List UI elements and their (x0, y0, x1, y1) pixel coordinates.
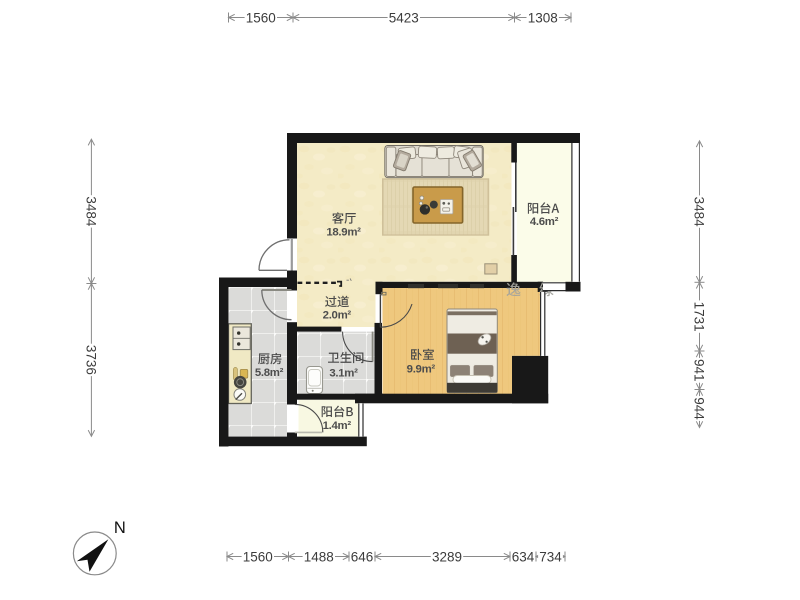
svg-text:5.8m²: 5.8m² (255, 367, 284, 379)
svg-text:1731: 1731 (692, 302, 707, 332)
svg-text:1488: 1488 (304, 549, 334, 564)
svg-text:1560: 1560 (246, 10, 276, 25)
svg-text:5423: 5423 (389, 10, 419, 25)
svg-text:3484: 3484 (84, 196, 99, 227)
svg-text:9.9m²: 9.9m² (407, 364, 436, 376)
svg-text:646: 646 (351, 549, 374, 564)
svg-text:941: 941 (692, 359, 707, 382)
svg-text:1308: 1308 (528, 10, 558, 25)
svg-text:3.1m²: 3.1m² (329, 368, 358, 380)
svg-text:3484: 3484 (692, 197, 707, 228)
svg-text:944: 944 (692, 397, 707, 420)
svg-text:1.4m²: 1.4m² (323, 420, 352, 432)
svg-text:3289: 3289 (432, 549, 462, 564)
svg-text:3736: 3736 (84, 345, 99, 375)
svg-text:634: 634 (512, 549, 535, 564)
svg-text:18.9m²: 18.9m² (326, 227, 361, 239)
svg-text:4.6m²: 4.6m² (530, 216, 559, 228)
svg-text:N: N (114, 519, 126, 537)
svg-text:2.0m²: 2.0m² (323, 310, 352, 322)
svg-text:734: 734 (539, 549, 562, 564)
svg-text:1560: 1560 (243, 549, 273, 564)
